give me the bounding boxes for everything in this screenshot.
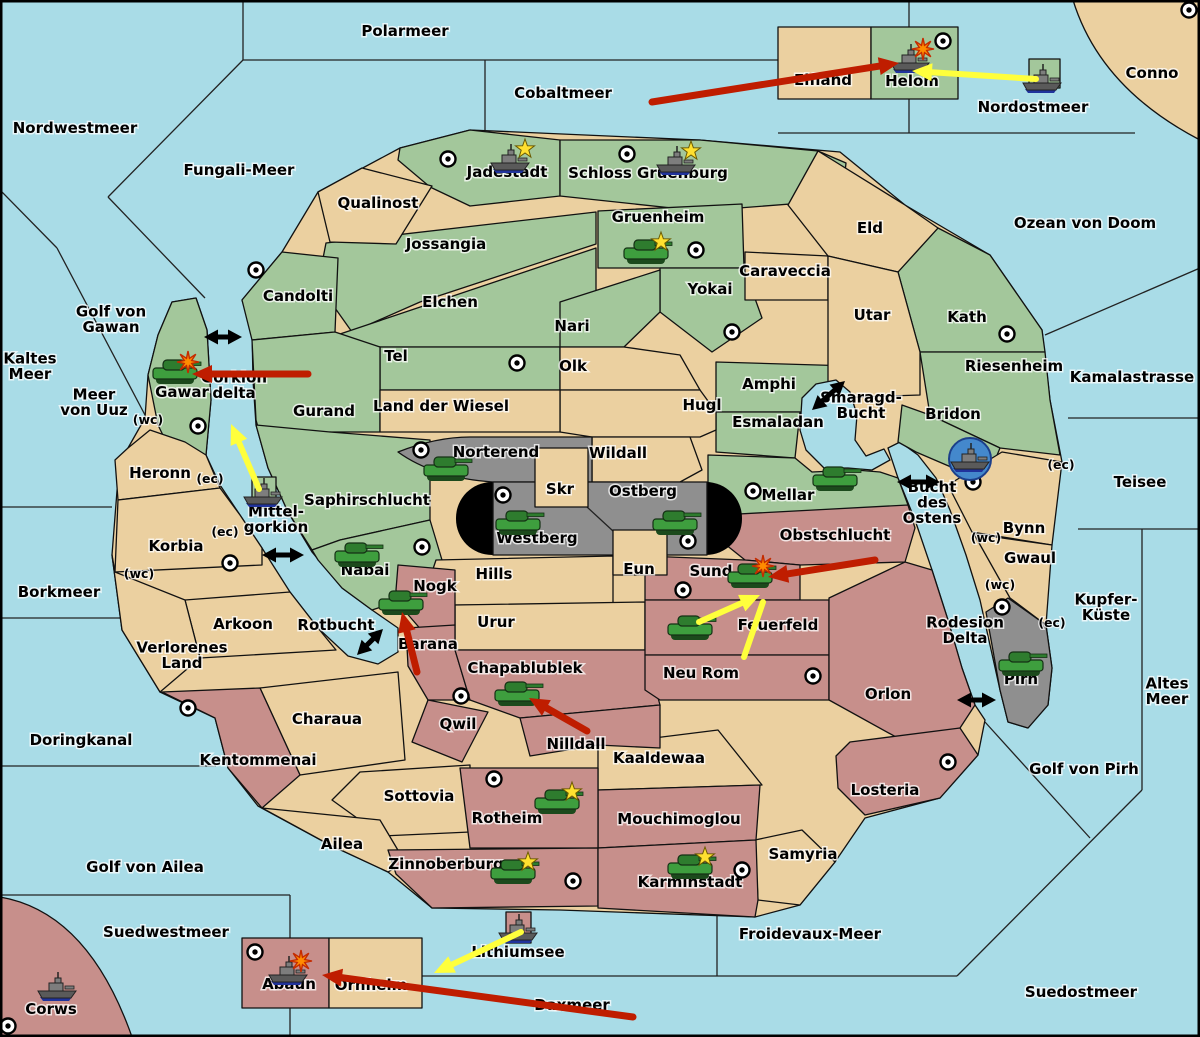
- explosion-icon: [177, 351, 199, 373]
- supply-center-icon: [487, 772, 502, 787]
- explosion-icon: [912, 38, 934, 60]
- supply-center-icon: [1000, 327, 1015, 342]
- coast-marker: (wc): [133, 412, 163, 427]
- supply-center-icon: [735, 863, 750, 878]
- region-label-losteria: Losteria: [851, 781, 920, 799]
- region-label-saphirschlucht: Saphirschlucht: [304, 491, 430, 509]
- region-label-bridon: Bridon: [925, 405, 981, 423]
- supply-center-icon: [746, 484, 761, 499]
- supply-center-icon: [689, 243, 704, 258]
- supply-center-icon: [995, 600, 1010, 615]
- region-label-gawar: Gawar: [155, 383, 209, 401]
- region-label-corws: Corws: [25, 1000, 77, 1018]
- supply-center-icon: [181, 701, 196, 716]
- region-label-esmaladan: Esmaladan: [732, 413, 824, 431]
- game-map[interactable]: PolarmeerNordwestmeerFungali-MeerCobaltm…: [0, 0, 1200, 1037]
- supply-center-icon: [681, 534, 696, 549]
- supply-center-icon: [454, 689, 469, 704]
- region-label-eun: Eun: [623, 560, 655, 578]
- supply-center-icon: [441, 152, 456, 167]
- region-label-eld: Eld: [857, 219, 883, 237]
- region-label-zinnoberburg: Zinnoberburg: [388, 855, 504, 873]
- sea-label-teisee: Teisee: [1114, 473, 1167, 491]
- region-label-korbia: Korbia: [148, 537, 203, 555]
- region-label-caraveccia: Caraveccia: [739, 262, 831, 280]
- sea-label-mittel-gorkion: Mittel-gorkion: [244, 503, 309, 537]
- supply-center-icon: [223, 556, 238, 571]
- fleet-unit-icon[interactable]: [949, 438, 991, 480]
- sea-label-rotbucht: Rotbucht: [297, 616, 374, 634]
- region-label-nogk: Nogk: [413, 577, 458, 595]
- region-label-land-der-wiesel: Land der Wiesel: [373, 397, 509, 415]
- region-label-nari: Nari: [554, 317, 589, 335]
- sea-label-kupfer-k-ste: Kupfer-Küste: [1074, 591, 1137, 625]
- region-label-mouchimoglou: Mouchimoglou: [617, 810, 740, 828]
- region-label-mellar: Mellar: [762, 486, 816, 504]
- explosion-icon: [752, 555, 774, 577]
- supply-center-icon: [248, 945, 263, 960]
- supply-center-icon: [249, 263, 264, 278]
- supply-center-icon: [620, 147, 635, 162]
- region-label-hills: Hills: [476, 565, 513, 583]
- region-label-olk: Olk: [559, 357, 588, 375]
- war-map-stage: PolarmeerNordwestmeerFungali-MeerCobaltm…: [0, 0, 1200, 1037]
- supply-center-icon: [566, 874, 581, 889]
- coast-marker: (ec): [211, 524, 238, 539]
- sea-label-suedwestmeer: Suedwestmeer: [103, 923, 229, 941]
- sea-label-golf-von-pirh: Golf von Pirh: [1029, 760, 1139, 778]
- region-label-charaua: Charaua: [292, 710, 362, 728]
- coast-marker: (wc): [124, 566, 154, 581]
- region-label-qualinost: Qualinost: [338, 194, 419, 212]
- supply-center-icon: [510, 356, 525, 371]
- sea-label-cobaltmeer: Cobaltmeer: [514, 84, 612, 102]
- region-label-norterend: Norterend: [453, 443, 540, 461]
- region-label-yokai: Yokai: [686, 280, 732, 298]
- region-label-obstschlucht: Obstschlucht: [780, 526, 891, 544]
- region-label-wildall: Wildall: [589, 444, 647, 462]
- supply-center-icon: [936, 34, 951, 49]
- sea-label-suedostmeer: Suedostmeer: [1025, 983, 1138, 1001]
- region-label-tel: Tel: [384, 347, 408, 365]
- supply-center-icon: [676, 583, 691, 598]
- region-label-conno: Conno: [1126, 64, 1179, 82]
- coast-marker: (ec): [1047, 457, 1074, 472]
- region-label-gurand: Gurand: [293, 402, 355, 420]
- region-label-bynn: Bynn: [1003, 519, 1046, 537]
- supply-center-icon: [941, 755, 956, 770]
- region-ornheim: [329, 938, 422, 1008]
- region-label-urur: Urur: [477, 613, 515, 631]
- region-label-kath: Kath: [947, 308, 987, 326]
- region-label-arkoon: Arkoon: [213, 615, 273, 633]
- region-label-hugl: Hugl: [682, 396, 721, 414]
- region-label-jossangia: Jossangia: [405, 235, 487, 253]
- sea-label-polarmeer: Polarmeer: [361, 22, 449, 40]
- explosion-icon: [290, 950, 312, 972]
- coast-marker: (wc): [971, 530, 1001, 545]
- sea-label-nordwestmeer: Nordwestmeer: [13, 119, 138, 137]
- coast-marker: (ec): [196, 471, 223, 486]
- region-label-neu-rom: Neu Rom: [663, 664, 739, 682]
- region-label-gruenheim: Gruenheim: [612, 208, 705, 226]
- region-label-amphi: Amphi: [742, 375, 796, 393]
- coast-marker: (wc): [985, 577, 1015, 592]
- sea-label-fungali-meer: Fungali-Meer: [184, 161, 295, 179]
- sea-label-altes-meer: AltesMeer: [1145, 675, 1188, 709]
- coast-marker: (ec): [1038, 615, 1065, 630]
- region-label-nilldall: Nilldall: [546, 735, 605, 753]
- region-skr: [535, 448, 588, 507]
- sea-label-kaltes-meer: KaltesMeer: [3, 350, 56, 384]
- supply-center-icon: [415, 540, 430, 555]
- supply-center-icon: [1, 1019, 16, 1034]
- region-label-riesenheim: Riesenheim: [965, 357, 1063, 375]
- region-label-chapablublek: Chapablublek: [467, 659, 583, 677]
- supply-center-icon: [725, 325, 740, 340]
- region-label-sottovia: Sottovia: [384, 787, 455, 805]
- sea-label-golf-von-gawan: Golf vonGawan: [76, 303, 146, 337]
- region-label-sund: Sund: [690, 562, 733, 580]
- supply-center-icon: [496, 488, 511, 503]
- region-label-ailea: Ailea: [321, 835, 363, 853]
- sea-label-kamalastrasse: Kamalastrasse: [1070, 368, 1194, 386]
- region-label-kaaldewaa: Kaaldewaa: [613, 749, 705, 767]
- sea-label-nordostmeer: Nordostmeer: [978, 98, 1089, 116]
- region-label-heronn: Heronn: [129, 464, 191, 482]
- sea-label-doringkanal: Doringkanal: [30, 731, 133, 749]
- supply-center-icon: [1182, 3, 1197, 18]
- region-label-gwaul: Gwaul: [1004, 549, 1056, 567]
- region-label-ostberg: Ostberg: [609, 482, 677, 500]
- sea-label-borkmeer: Borkmeer: [18, 583, 101, 601]
- region-label-qwil: Qwil: [440, 715, 477, 733]
- supply-center-icon: [191, 419, 206, 434]
- region-label-orlon: Orlon: [865, 685, 911, 703]
- sea-label-froidevaux-meer: Froidevaux-Meer: [739, 925, 882, 943]
- region-label-candolti: Candolti: [263, 287, 333, 305]
- sea-label-ozean-von-doom: Ozean von Doom: [1014, 214, 1156, 232]
- region-label-skr: Skr: [546, 480, 575, 498]
- region-label-utar: Utar: [854, 306, 891, 324]
- region-label-schloss-gruenburg: Schloss Gruenburg: [568, 164, 728, 182]
- region-label-kentommenai: Kentommenai: [199, 751, 316, 769]
- supply-center-icon: [806, 669, 821, 684]
- supply-center-icon: [414, 443, 429, 458]
- region-label-elchen: Elchen: [422, 293, 478, 311]
- region-label-samyria: Samyria: [769, 845, 838, 863]
- sea-label-golf-von-ailea: Golf von Ailea: [86, 858, 204, 876]
- region-label-rotheim: Rotheim: [472, 809, 543, 827]
